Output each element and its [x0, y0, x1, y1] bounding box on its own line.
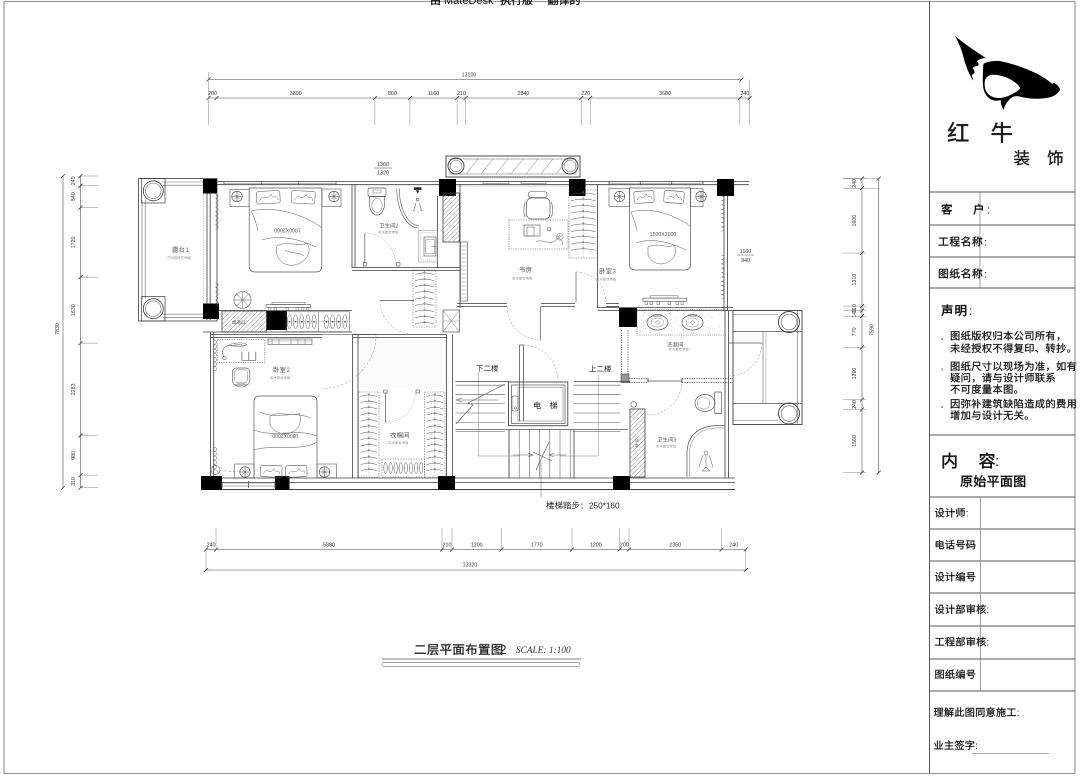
svg-text::: :: [984, 269, 987, 281]
svg-text:1310: 1310: [852, 274, 858, 286]
svg-text::: :: [987, 638, 990, 649]
svg-text:2: 2: [500, 643, 507, 657]
svg-text:240: 240: [729, 543, 738, 549]
svg-text:310: 310: [71, 477, 77, 486]
svg-text:1290: 1290: [852, 368, 858, 380]
svg-text::: :: [984, 237, 987, 249]
svg-text::: :: [987, 605, 990, 616]
svg-text:980: 980: [71, 451, 77, 460]
svg-text:240: 240: [852, 179, 858, 188]
svg-text:210: 210: [443, 543, 452, 549]
svg-text:240: 240: [71, 176, 77, 185]
svg-text:1720: 1720: [71, 236, 77, 248]
svg-text::: :: [1017, 708, 1020, 719]
svg-text:1:100: 1:100: [549, 646, 571, 656]
svg-text:2840: 2840: [518, 91, 530, 97]
svg-text:.: .: [1046, 374, 1049, 385]
svg-text::: :: [966, 509, 969, 520]
svg-text:3890: 3890: [290, 91, 302, 97]
svg-text:13320: 13320: [463, 563, 478, 569]
svg-text:1320: 1320: [377, 171, 389, 177]
svg-text:2: 2: [396, 224, 399, 230]
svg-text::: :: [975, 741, 978, 752]
svg-text:13100: 13100: [462, 73, 477, 79]
svg-text:1200: 1200: [590, 543, 602, 549]
svg-text:540: 540: [71, 192, 77, 201]
svg-text:1360: 1360: [377, 162, 389, 168]
svg-text:1160: 1160: [740, 249, 751, 255]
svg-text:200: 200: [620, 543, 629, 549]
svg-text:1770: 1770: [531, 543, 543, 549]
svg-text:250*160: 250*160: [589, 502, 620, 511]
svg-text::: :: [995, 453, 999, 470]
svg-text:240: 240: [207, 543, 216, 549]
svg-text:1160: 1160: [428, 91, 439, 97]
svg-text:2350: 2350: [669, 543, 681, 549]
svg-text:7830: 7830: [55, 323, 61, 335]
svg-text:140: 140: [852, 309, 858, 318]
svg-text:5880: 5880: [323, 543, 335, 549]
svg-text:220: 220: [581, 91, 590, 97]
svg-text::: :: [969, 304, 972, 318]
svg-text:1630: 1630: [71, 304, 77, 316]
svg-text:1200: 1200: [471, 543, 483, 549]
svg-text:1500X2000: 1500X2000: [650, 232, 677, 238]
svg-text::: :: [987, 205, 990, 217]
svg-text:240: 240: [740, 91, 749, 97]
svg-text:240: 240: [852, 400, 858, 409]
svg-text:1800X2000: 1800X2000: [272, 432, 299, 438]
svg-text:1600: 1600: [852, 215, 858, 227]
svg-text:3680: 3680: [659, 91, 671, 97]
svg-text:210: 210: [457, 91, 466, 97]
svg-text:7590: 7590: [870, 324, 876, 336]
svg-text:SCALE:: SCALE:: [516, 646, 546, 656]
svg-text:2283: 2283: [71, 383, 77, 395]
svg-text:860: 860: [388, 91, 397, 97]
svg-text:200: 200: [208, 91, 217, 97]
svg-text:940: 940: [741, 258, 750, 264]
svg-text:1800X2000: 1800X2000: [274, 227, 301, 233]
svg-text:770: 770: [852, 327, 858, 336]
svg-text:1560: 1560: [852, 435, 858, 447]
svg-text:3: 3: [674, 438, 677, 444]
